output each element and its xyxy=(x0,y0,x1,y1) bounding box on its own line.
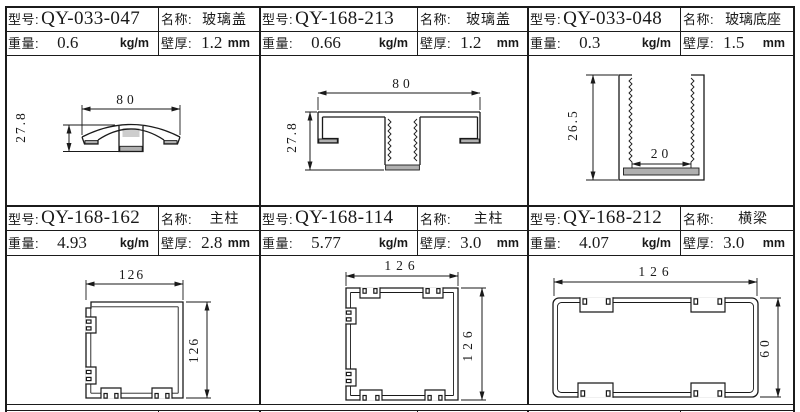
dim-height-label: 27.8 xyxy=(284,121,299,153)
slot-tab xyxy=(363,289,366,294)
slot-tab xyxy=(583,299,587,304)
slot-tab xyxy=(694,299,698,304)
cell4-model-field: 型号: QY-168-162 xyxy=(8,207,156,230)
weight-value: 0.3 xyxy=(579,33,600,53)
grid-divider-c1-B xyxy=(158,205,159,256)
slot-tab xyxy=(155,394,158,399)
slot-tab xyxy=(86,327,91,330)
weight-unit: kg/m xyxy=(120,36,149,50)
cell1-name-field: 名称: 玻璃盖 xyxy=(161,7,257,30)
slot-tab xyxy=(428,396,431,401)
dim-width-label: 126 xyxy=(638,264,673,279)
slot-tab xyxy=(115,394,118,399)
weight-value: 0.6 xyxy=(57,33,78,53)
grid-line-rowB-mid xyxy=(5,230,795,231)
weight-value: 5.77 xyxy=(311,233,341,253)
slot-tab xyxy=(606,299,610,304)
cell3-weight-field: 重量: 0.3 kg/m xyxy=(530,32,678,55)
dim-width-label: 80 xyxy=(392,76,414,91)
name-label: 名称: xyxy=(420,209,451,228)
left-slot-2 xyxy=(345,369,356,386)
grid-line-rowB-bottom xyxy=(5,255,795,257)
left-slot-1 xyxy=(85,317,96,333)
cell5-name-field: 名称: 主柱 xyxy=(420,207,526,230)
cell2-model-field: 型号: QY-168-213 xyxy=(262,7,415,30)
model-label: 型号: xyxy=(262,9,293,28)
model-value: QY-168-213 xyxy=(295,8,394,30)
thickness-value: 3.0 xyxy=(460,233,481,253)
wall-serration-right xyxy=(691,78,694,168)
dim-height-label: 27.8 xyxy=(13,111,28,143)
cell6-weight-field: 重量: 4.07 kg/m xyxy=(530,231,678,254)
name-label: 名称: xyxy=(420,9,451,28)
cell3-thickness-field: 壁厚: 1.5 mm xyxy=(683,32,792,55)
dim-height-label: 60 xyxy=(757,336,772,358)
name-label: 名称: xyxy=(161,209,192,228)
cell1-thickness-field: 壁厚: 1.2 mm xyxy=(161,32,257,55)
profile-catalog-sheet: 型号: QY-033-047 名称: 玻璃盖 重量: 0.6 kg/m 壁厚: … xyxy=(0,0,800,412)
stem-base xyxy=(120,146,142,151)
wall-serration-left xyxy=(388,119,391,161)
grid-divider-c3-B xyxy=(680,205,681,256)
profile-outline xyxy=(86,302,183,398)
slot-tab xyxy=(606,391,610,396)
slot-tab xyxy=(426,289,429,294)
slot-tab xyxy=(86,320,91,323)
cell4-weight-field: 重量: 4.93 kg/m xyxy=(8,231,156,254)
extension-lines xyxy=(305,97,480,170)
grid-divider-c3-A xyxy=(680,6,681,56)
grid-boundary-c2-c3 xyxy=(527,6,529,405)
inner-wall-line xyxy=(558,303,754,393)
thickness-value: 1.2 xyxy=(460,33,481,53)
slot-tab xyxy=(346,318,351,321)
slot-tab xyxy=(166,394,169,399)
wall-serration-left xyxy=(629,78,632,168)
weight-unit: kg/m xyxy=(379,236,408,250)
profile-drawing-beam: 126 60 xyxy=(528,253,795,404)
cell1-weight-field: 重量: 0.6 kg/m xyxy=(8,32,156,55)
grid-line-next-row-top xyxy=(5,410,795,412)
profile-outline xyxy=(318,112,480,165)
grid-line-left-edge xyxy=(5,6,7,412)
slot-tab xyxy=(581,391,585,396)
weight-value: 0.66 xyxy=(311,33,341,53)
thickness-unit: mm xyxy=(497,236,519,250)
model-label: 型号: xyxy=(8,209,39,228)
profile-drawing-main-column-2: 126 126 xyxy=(260,253,528,404)
cell2-name-field: 名称: 玻璃盖 xyxy=(420,7,526,30)
weight-value: 4.07 xyxy=(579,233,609,253)
slot-tab xyxy=(363,396,366,401)
slot-tab xyxy=(346,379,351,382)
profile-drawing-glass-base: 26.5 20 xyxy=(528,55,795,206)
name-label: 名称: xyxy=(161,9,192,28)
grid-line-rowB-top xyxy=(5,205,795,207)
thickness-label: 壁厚: xyxy=(683,233,714,252)
slot-tab xyxy=(718,299,722,304)
cell2-weight-field: 重量: 0.66 kg/m xyxy=(262,32,415,55)
thickness-unit: mm xyxy=(497,36,519,50)
cell6-name-field: 名称: 横梁 xyxy=(683,207,792,230)
cell5-weight-field: 重量: 5.77 kg/m xyxy=(262,231,415,254)
profile-outline xyxy=(553,298,758,397)
weight-unit: kg/m xyxy=(379,36,408,50)
weight-label: 重量: xyxy=(530,33,561,52)
thickness-unit: mm xyxy=(228,236,250,250)
thickness-label: 壁厚: xyxy=(420,233,451,252)
cell2-thickness-field: 壁厚: 1.2 mm xyxy=(420,32,526,55)
slot-tab xyxy=(86,377,91,380)
thickness-label: 壁厚: xyxy=(420,33,451,52)
grid-line-rowA-mid xyxy=(5,31,795,32)
thickness-value: 3.0 xyxy=(723,233,744,253)
cell4-name-field: 名称: 主柱 xyxy=(161,207,257,230)
weight-value: 4.93 xyxy=(57,233,87,253)
dim-width-label: 126 xyxy=(119,267,145,282)
model-value: QY-168-114 xyxy=(295,207,393,229)
dim-inner-width-label: 20 xyxy=(651,146,673,161)
name-value: 玻璃底座 xyxy=(714,9,792,29)
profile-drawing-glass-cover-arc: 80 27.8 xyxy=(5,55,260,206)
grid-line-right-edge xyxy=(793,6,795,412)
channel-base xyxy=(624,168,700,175)
right-foot xyxy=(461,139,480,143)
cell6-model-field: 型号: QY-168-212 xyxy=(530,207,678,230)
thickness-label: 壁厚: xyxy=(161,233,192,252)
thickness-unit: mm xyxy=(763,36,785,50)
slot-tab xyxy=(374,289,377,294)
slot-tab xyxy=(439,396,442,401)
thickness-unit: mm xyxy=(228,36,250,50)
dim-height-label: 126 xyxy=(460,326,475,361)
cell3-model-field: 型号: QY-033-048 xyxy=(530,7,678,30)
weight-label: 重量: xyxy=(262,233,293,252)
cell5-model-field: 型号: QY-168-114 xyxy=(262,207,415,230)
slot-tab xyxy=(718,391,722,396)
grid-line-rowA-bottom xyxy=(5,55,795,57)
model-label: 型号: xyxy=(262,209,293,228)
cell5-thickness-field: 壁厚: 3.0 mm xyxy=(420,231,526,254)
grid-divider-c2-B xyxy=(417,205,418,256)
left-slot-1 xyxy=(345,308,356,324)
cell6-thickness-field: 壁厚: 3.0 mm xyxy=(683,231,792,254)
slot-tab xyxy=(346,372,351,375)
slot-tab xyxy=(346,311,351,314)
grid-line-top xyxy=(5,6,795,8)
left-foot xyxy=(319,139,338,143)
name-value: 玻璃盖 xyxy=(192,9,257,29)
weight-unit: kg/m xyxy=(642,236,671,250)
name-value: 横梁 xyxy=(714,208,792,228)
extension-lines xyxy=(63,105,180,152)
model-value: QY-168-212 xyxy=(563,207,662,229)
dim-height-label: 26.5 xyxy=(565,109,580,141)
thickness-value: 2.8 xyxy=(201,233,222,253)
name-value: 玻璃盖 xyxy=(451,9,526,29)
cell1-model-field: 型号: QY-033-047 xyxy=(8,7,156,30)
extension-lines xyxy=(554,278,781,397)
cell3-name-field: 名称: 玻璃底座 xyxy=(683,7,792,30)
weight-label: 重量: xyxy=(262,33,293,52)
slot-tab xyxy=(376,396,379,401)
thickness-label: 壁厚: xyxy=(161,33,192,52)
name-value: 主柱 xyxy=(192,208,257,228)
right-foot xyxy=(164,141,177,144)
thickness-label: 壁厚: xyxy=(683,33,714,52)
channel-base xyxy=(386,165,420,170)
wall-serration-right xyxy=(414,119,417,161)
profile-drawing-main-column-1: 126 126 xyxy=(5,253,260,404)
model-label: 型号: xyxy=(530,9,561,28)
slot-tab xyxy=(86,370,91,373)
slot-tab xyxy=(104,394,107,399)
model-value: QY-033-047 xyxy=(41,8,140,30)
grid-boundary-c1-c2 xyxy=(259,6,261,405)
dim-width-label: 80 xyxy=(116,92,138,107)
dim-height-label: 126 xyxy=(186,337,201,363)
weight-label: 重量: xyxy=(8,33,39,52)
slot-tab xyxy=(694,391,698,396)
grid-line-rowB-drawing-bottom xyxy=(5,404,795,406)
name-label: 名称: xyxy=(683,209,714,228)
left-foot xyxy=(85,141,98,144)
profile-outline xyxy=(346,288,458,400)
grid-divider-c1-A xyxy=(158,6,159,56)
name-value: 主柱 xyxy=(451,208,526,228)
thickness-value: 1.2 xyxy=(201,33,222,53)
profile-drawing-glass-cover-hat: 80 27.8 xyxy=(260,55,528,206)
name-label: 名称: xyxy=(683,9,714,28)
inner-wall-lines xyxy=(351,293,454,396)
model-value: QY-168-162 xyxy=(41,207,140,229)
extension-lines xyxy=(586,75,618,180)
model-label: 型号: xyxy=(8,9,39,28)
slot-tab xyxy=(437,289,440,294)
cell4-thickness-field: 壁厚: 2.8 mm xyxy=(161,231,257,254)
thickness-value: 1.5 xyxy=(723,33,744,53)
weight-label: 重量: xyxy=(530,233,561,252)
dim-width-label: 126 xyxy=(384,258,419,273)
thickness-unit: mm xyxy=(763,236,785,250)
grid-divider-c2-A xyxy=(417,6,418,56)
model-value: QY-033-048 xyxy=(563,8,662,30)
weight-unit: kg/m xyxy=(120,236,149,250)
weight-label: 重量: xyxy=(8,233,39,252)
left-slot-2 xyxy=(85,367,96,384)
model-label: 型号: xyxy=(530,209,561,228)
inner-wall-lines xyxy=(91,307,178,393)
weight-unit: kg/m xyxy=(642,36,671,50)
